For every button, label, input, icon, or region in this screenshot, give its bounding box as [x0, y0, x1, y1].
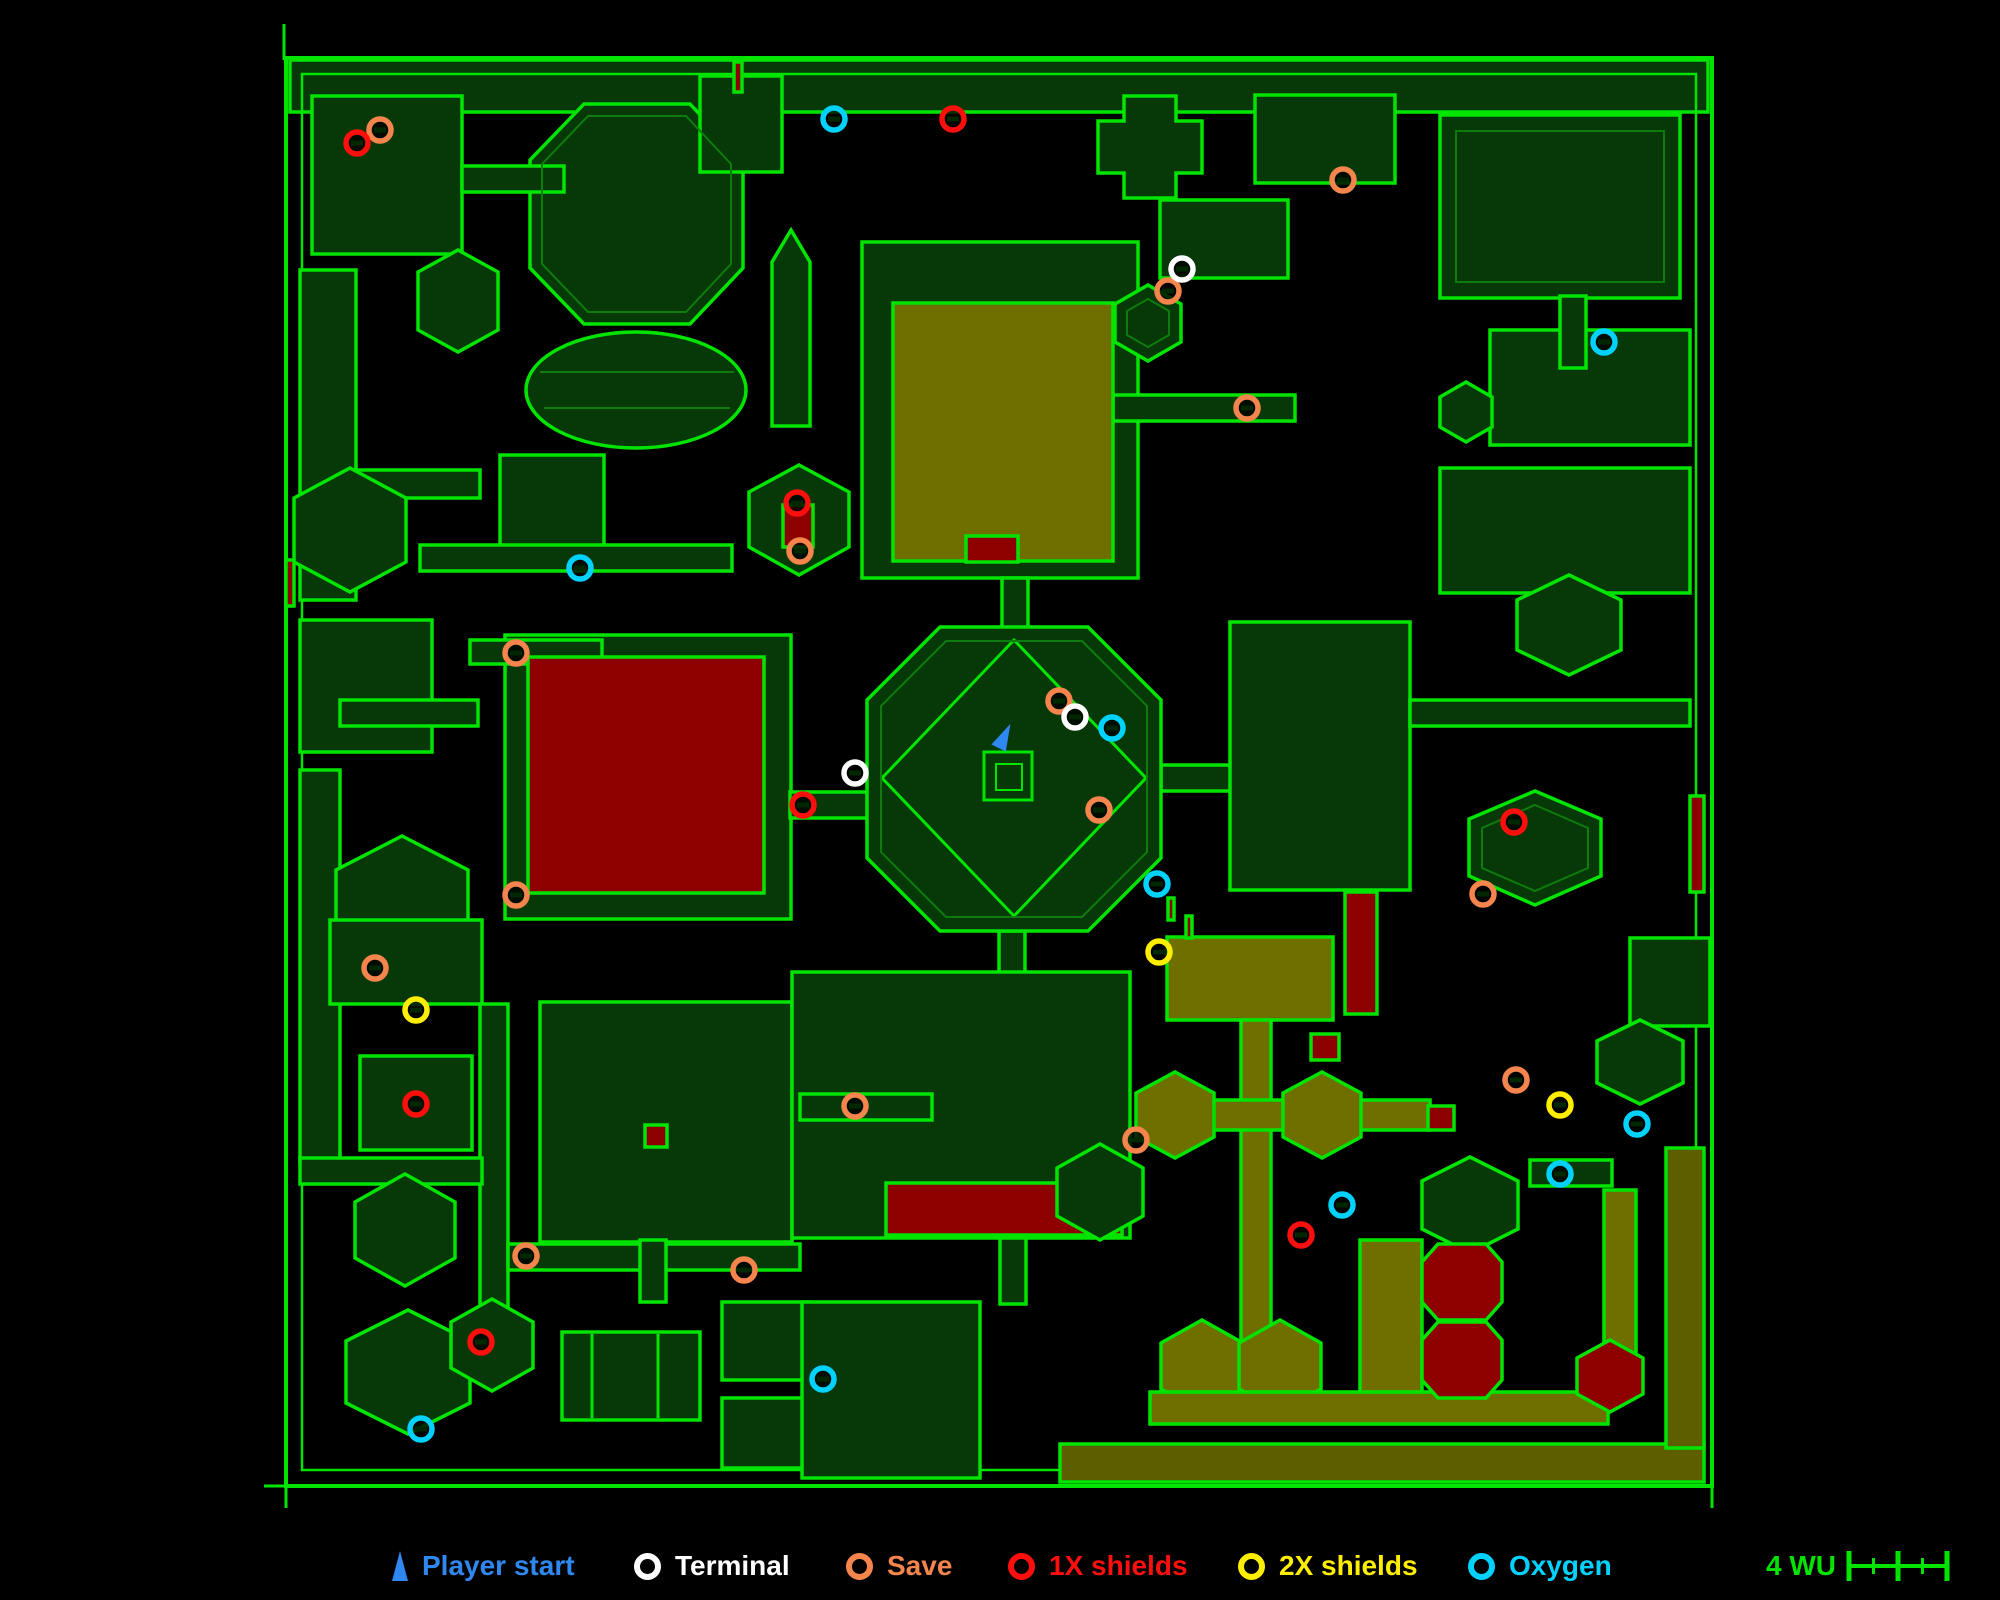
map-wall-rect: [1002, 578, 1028, 630]
shield1-marker-icon: [792, 794, 814, 816]
map-wall-rect: [528, 657, 764, 893]
map-wall-poly: [355, 1174, 455, 1286]
map-wall-rect: [640, 1240, 666, 1302]
oxygen-marker-icon: [1626, 1113, 1648, 1135]
legend-label-player: Player start: [422, 1550, 575, 1582]
map-scale-label: 4 WU: [1766, 1550, 1836, 1582]
terminal-marker-icon: [844, 762, 866, 784]
shield1-marker-icon: [942, 108, 964, 130]
shield1-marker-icon: [786, 492, 808, 514]
oxygen-marker-icon: [1101, 717, 1123, 739]
shield1-marker-icon: [405, 1093, 427, 1115]
legend-label-oxygen: Oxygen: [1509, 1550, 1612, 1582]
legend-item-save: Save: [846, 1544, 952, 1588]
oxygen-ring-icon: [1468, 1553, 1495, 1580]
shield2-marker-icon: [405, 999, 427, 1021]
map-wall-rect: [1230, 622, 1410, 890]
map-wall-rect: [1440, 115, 1680, 298]
map-wall-rect: [1630, 938, 1710, 1026]
map-wall-rect: [286, 560, 294, 606]
map-wall-rect: [340, 700, 478, 726]
legend-label-shield2: 2X shields: [1279, 1550, 1418, 1582]
save-marker-icon: [1157, 280, 1179, 302]
save-marker-icon: [1125, 1129, 1147, 1151]
map-wall-rect: [722, 1398, 810, 1468]
map-wall-rect: [500, 455, 604, 555]
save-marker-icon: [789, 540, 811, 562]
map-viewer: 4 WU Player startTerminalSave1X shields2…: [0, 0, 2000, 1600]
oxygen-marker-icon: [569, 557, 591, 579]
save-marker-icon: [1505, 1069, 1527, 1091]
legend-item-shield1: 1X shields: [1008, 1544, 1188, 1588]
legend-item-oxygen: Oxygen: [1468, 1544, 1612, 1588]
map-wall-rect: [645, 1125, 667, 1147]
map-wall-rect: [462, 166, 564, 192]
map-wall-poly: [1422, 1157, 1518, 1253]
map-wall-poly: [1597, 1020, 1683, 1104]
level-map-canvas[interactable]: [0, 0, 2000, 1600]
map-scale-ruler-icon: [1846, 1548, 1950, 1584]
save-marker-icon: [1236, 397, 1258, 419]
save-marker-icon: [844, 1095, 866, 1117]
save-marker-icon: [515, 1245, 537, 1267]
oxygen-marker-icon: [1593, 331, 1615, 353]
map-wall-ellipse: [526, 332, 746, 448]
map-wall-rect: [1113, 395, 1295, 421]
oxygen-marker-icon: [1331, 1194, 1353, 1216]
save-marker-icon: [364, 957, 386, 979]
shield1-marker-icon: [346, 132, 368, 154]
map-wall-rect: [1666, 1148, 1704, 1448]
map-wall-rect: [1255, 95, 1395, 183]
shield2-marker-icon: [1148, 941, 1170, 963]
save-marker-icon: [505, 884, 527, 906]
terminal-marker-icon: [1171, 258, 1193, 280]
oxygen-marker-icon: [1146, 873, 1168, 895]
shield2-ring-icon: [1238, 1553, 1265, 1580]
map-wall-rect: [1428, 1106, 1454, 1130]
save-marker-icon: [1088, 799, 1110, 821]
map-wall-rect: [1150, 1392, 1608, 1424]
map-wall-rect: [1360, 1240, 1422, 1400]
map-wall-rect: [290, 60, 1708, 112]
map-scale: 4 WU: [1766, 1544, 1950, 1588]
map-wall-poly: [772, 230, 810, 426]
map-wall-rect: [1345, 892, 1377, 1014]
map-wall-rect: [1186, 916, 1192, 938]
terminal-ring-icon: [634, 1553, 661, 1580]
map-wall-rect: [1311, 1034, 1339, 1060]
save-marker-icon: [733, 1259, 755, 1281]
save-marker-icon: [1332, 169, 1354, 191]
map-wall-poly: [1422, 1322, 1502, 1398]
oxygen-marker-icon: [823, 108, 845, 130]
oxygen-marker-icon: [1549, 1163, 1571, 1185]
map-wall-rect: [540, 1002, 792, 1242]
map-wall-rect: [1690, 796, 1704, 892]
map-wall-rect: [966, 536, 1018, 562]
map-wall-rect: [1167, 937, 1333, 1020]
save-marker-icon: [505, 642, 527, 664]
map-wall-rect: [722, 1302, 810, 1380]
legend-item-player: Player start: [392, 1544, 575, 1588]
save-marker-icon: [369, 119, 391, 141]
legend-label-shield1: 1X shields: [1049, 1550, 1188, 1582]
map-legend: 4 WU Player startTerminalSave1X shields2…: [0, 1544, 2000, 1588]
legend-item-shield2: 2X shields: [1238, 1544, 1418, 1588]
map-wall-rect: [1168, 898, 1174, 920]
oxygen-marker-icon: [410, 1418, 432, 1440]
shield1-ring-icon: [1008, 1553, 1035, 1580]
map-wall-poly: [1440, 382, 1492, 442]
map-wall-rect: [893, 303, 1113, 561]
map-wall-rect: [734, 62, 742, 92]
map-wall-rect: [1490, 330, 1690, 445]
map-wall-poly: [1577, 1340, 1643, 1412]
map-wall-poly: [418, 250, 498, 352]
map-wall-rect: [1560, 296, 1586, 368]
map-wall-rect: [1440, 468, 1690, 593]
terminal-marker-icon: [1064, 706, 1086, 728]
shield2-marker-icon: [1549, 1094, 1571, 1116]
shield1-marker-icon: [1290, 1224, 1312, 1246]
map-wall-rect: [480, 1004, 508, 1336]
map-wall-rect: [1060, 1444, 1704, 1482]
map-wall-poly: [867, 627, 1161, 931]
legend-label-save: Save: [887, 1550, 952, 1582]
shield1-marker-icon: [470, 1331, 492, 1353]
legend-label-terminal: Terminal: [675, 1550, 790, 1582]
map-wall-rect: [300, 620, 432, 752]
map-wall-rect: [330, 920, 482, 1004]
save-marker-icon: [1472, 883, 1494, 905]
player-start-arrow-icon: [392, 1551, 408, 1581]
legend-item-terminal: Terminal: [634, 1544, 790, 1588]
map-wall-poly: [1422, 1244, 1502, 1320]
map-wall-poly: [1283, 1072, 1361, 1158]
oxygen-marker-icon: [812, 1368, 834, 1390]
save-ring-icon: [846, 1553, 873, 1580]
map-wall-rect: [1000, 1238, 1026, 1304]
shield1-marker-icon: [1503, 811, 1525, 833]
map-wall-rect: [562, 1332, 700, 1420]
map-wall-rect: [1410, 700, 1690, 726]
